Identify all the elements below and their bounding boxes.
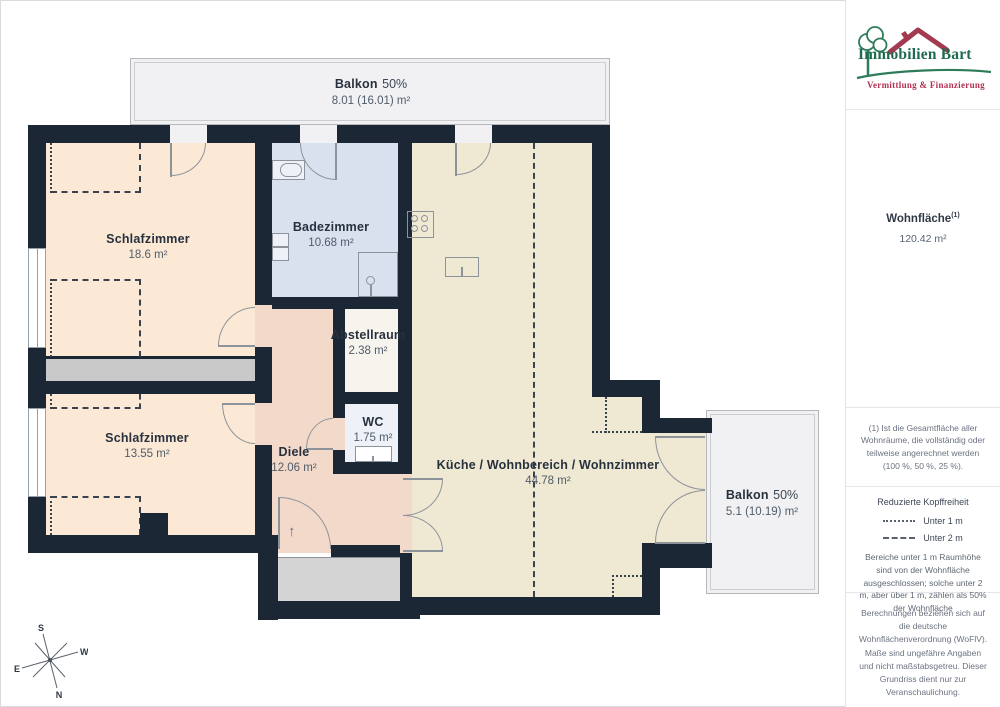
dotted-line-sample-icon	[883, 520, 915, 522]
stove-burner-icon	[421, 225, 428, 232]
logo-tagline: Vermittlung & Finanzierung	[854, 80, 998, 90]
legend-title: Reduzierte Kopffreiheit	[854, 497, 992, 507]
headroom-dashed-line	[139, 279, 141, 357]
entrance-niche	[278, 557, 400, 601]
window	[28, 248, 46, 348]
room-label-schlafzimmer-2: Schlafzimmer 13.55 m²	[105, 432, 189, 460]
room-label-badezimmer: Badezimmer 10.68 m²	[293, 221, 369, 249]
stove-burner-icon	[411, 225, 418, 232]
legend-item-label: Unter 2 m	[923, 533, 963, 543]
wall	[400, 553, 412, 601]
living-area-section: Wohnfläche(1) 120.42 m²	[846, 110, 1000, 408]
headroom-dotted-line	[592, 431, 642, 433]
headroom-dashed-line	[139, 143, 141, 193]
door-opening	[300, 125, 337, 143]
washbasin-line	[272, 246, 289, 248]
headroom-dotted-line	[612, 575, 642, 577]
headroom-dashed-line	[51, 407, 141, 409]
room-area: 44.78 m²	[437, 476, 660, 488]
room-name: Schlafzimmer	[105, 432, 189, 445]
wall-pillar	[140, 513, 168, 535]
balcony-name: Balkon	[335, 77, 378, 91]
wall	[28, 535, 258, 553]
room-name: Badezimmer	[293, 221, 369, 234]
room-area: 12.06 m²	[271, 463, 316, 475]
headroom-dotted-line	[612, 575, 614, 597]
headroom-dashed-line	[51, 496, 141, 498]
wall	[333, 462, 412, 474]
footnote-marker: (1)	[951, 212, 960, 219]
balcony-name-line: Balkon 50%	[332, 76, 411, 92]
compass-east-label: E	[14, 664, 20, 674]
room-area: 1.75 m²	[354, 433, 393, 445]
balcony-share: 50%	[773, 488, 798, 502]
footnote-section: (1) Ist die Gesamtfläche aller Wohnräume…	[846, 408, 1000, 487]
wall	[272, 297, 412, 309]
balcony-area: 8.01 (16.01) m²	[332, 96, 411, 108]
headroom-dashed-line	[51, 279, 141, 281]
wall	[258, 601, 420, 619]
compass-north-label: N	[56, 690, 63, 700]
window-glass-line	[37, 409, 38, 496]
low-wall-band	[46, 359, 255, 381]
floorplan-page: ↑ Schlafzimmer 18.6 m² Schlafzimm	[0, 0, 1000, 707]
wall	[642, 568, 660, 615]
headroom-dotted-line	[50, 279, 52, 357]
wall	[642, 397, 660, 418]
floor-plan: ↑ Schlafzimmer 18.6 m² Schlafzimm	[0, 0, 845, 707]
living-area-value: 120.42 m²	[899, 233, 946, 245]
balcony-name-line: Balkon 50%	[726, 487, 798, 503]
legend-item-under-1m: Unter 1 m	[854, 516, 992, 526]
disclaimer-section: Berechnungen beziehen sich auf die deuts…	[846, 593, 1000, 707]
room-area: 18.6 m²	[106, 250, 190, 262]
legend-section: Reduzierte Kopffreiheit Unter 1 m Unter …	[846, 487, 1000, 593]
room-wohnbereich	[412, 143, 592, 597]
balcony-top-label: Balkon 50% 8.01 (16.01) m²	[332, 76, 411, 108]
room-area: 13.55 m²	[105, 449, 189, 461]
toilet-icon	[355, 446, 392, 462]
wall	[333, 392, 412, 404]
wall	[46, 381, 255, 394]
room-label-wc: WC 1.75 m²	[354, 416, 393, 444]
wall	[642, 543, 712, 568]
room-wohnbereich-ext1	[592, 397, 642, 597]
wall	[398, 125, 412, 474]
compass-west-label: W	[80, 647, 88, 657]
wall	[412, 597, 660, 615]
legend-item-label: Unter 1 m	[923, 516, 963, 526]
bathtub-basin-icon	[280, 163, 302, 177]
room-label-diele: Diele 12.06 m²	[271, 446, 316, 474]
room-name: Schlafzimmer	[106, 233, 190, 246]
room-label-abstellraum: Abstellraum 2.38 m²	[331, 329, 405, 357]
room-name: Abstellraum	[331, 329, 405, 342]
stove-burner-icon	[411, 215, 418, 222]
wall	[331, 545, 400, 557]
headroom-dashed-line	[51, 191, 141, 193]
wall	[592, 380, 660, 397]
door-opening	[255, 305, 272, 347]
headroom-dashed-line	[533, 143, 535, 597]
door-opening	[455, 125, 492, 143]
door-opening	[333, 418, 345, 450]
wall	[642, 418, 712, 433]
balcony-name: Balkon	[726, 488, 769, 502]
room-diele-lower	[333, 474, 412, 553]
shower-icon	[358, 252, 398, 297]
room-name: WC	[354, 416, 393, 429]
dashed-line-sample-icon	[883, 537, 915, 539]
underline-swoosh	[857, 70, 991, 78]
shower-drain-icon	[366, 276, 375, 285]
toilet-line	[372, 456, 374, 462]
room-area: 10.68 m²	[293, 238, 369, 250]
room-label-wohnbereich: Küche / Wohnbereich / Wohnzimmer 44.78 m…	[437, 459, 660, 487]
footnote-text: (1) Ist die Gesamtfläche aller Wohnräume…	[859, 422, 987, 473]
logo-section: Immobilien Bart Vermittlung & Finanzieru…	[846, 0, 1000, 110]
headroom-dotted-line	[605, 397, 607, 433]
window-glass-line	[37, 249, 38, 347]
logo-wordmark: Immobilien Bart	[858, 46, 994, 64]
legend-item-under-2m: Unter 2 m	[854, 533, 992, 543]
compass-south-label: S	[38, 623, 44, 633]
shower-drain-line	[370, 285, 372, 296]
living-area-title: Wohnfläche(1)	[886, 212, 960, 225]
balcony-share: 50%	[382, 77, 407, 91]
entrance-arrow-icon: ↑	[288, 524, 296, 539]
door-opening	[170, 125, 207, 143]
room-area: 2.38 m²	[331, 346, 405, 358]
wall	[592, 125, 610, 393]
window	[28, 408, 46, 497]
headroom-dotted-line	[50, 496, 52, 535]
balcony-right-label: Balkon 50% 5.1 (10.19) m²	[726, 487, 798, 519]
kitchen-sink-tap-line	[461, 267, 463, 277]
stove-burner-icon	[421, 215, 428, 222]
sidebar: Immobilien Bart Vermittlung & Finanzieru…	[845, 0, 1000, 707]
balcony-area: 5.1 (10.19) m²	[726, 507, 798, 519]
room-label-schlafzimmer-1: Schlafzimmer 18.6 m²	[106, 233, 190, 261]
headroom-dotted-line	[50, 143, 52, 193]
door-opening	[255, 403, 272, 445]
compass-rose-icon: S W E N	[10, 618, 88, 700]
room-name: Küche / Wohnbereich / Wohnzimmer	[437, 459, 660, 472]
disclaimer-text: Berechnungen beziehen sich auf die deuts…	[858, 607, 988, 699]
room-name: Diele	[271, 446, 316, 459]
